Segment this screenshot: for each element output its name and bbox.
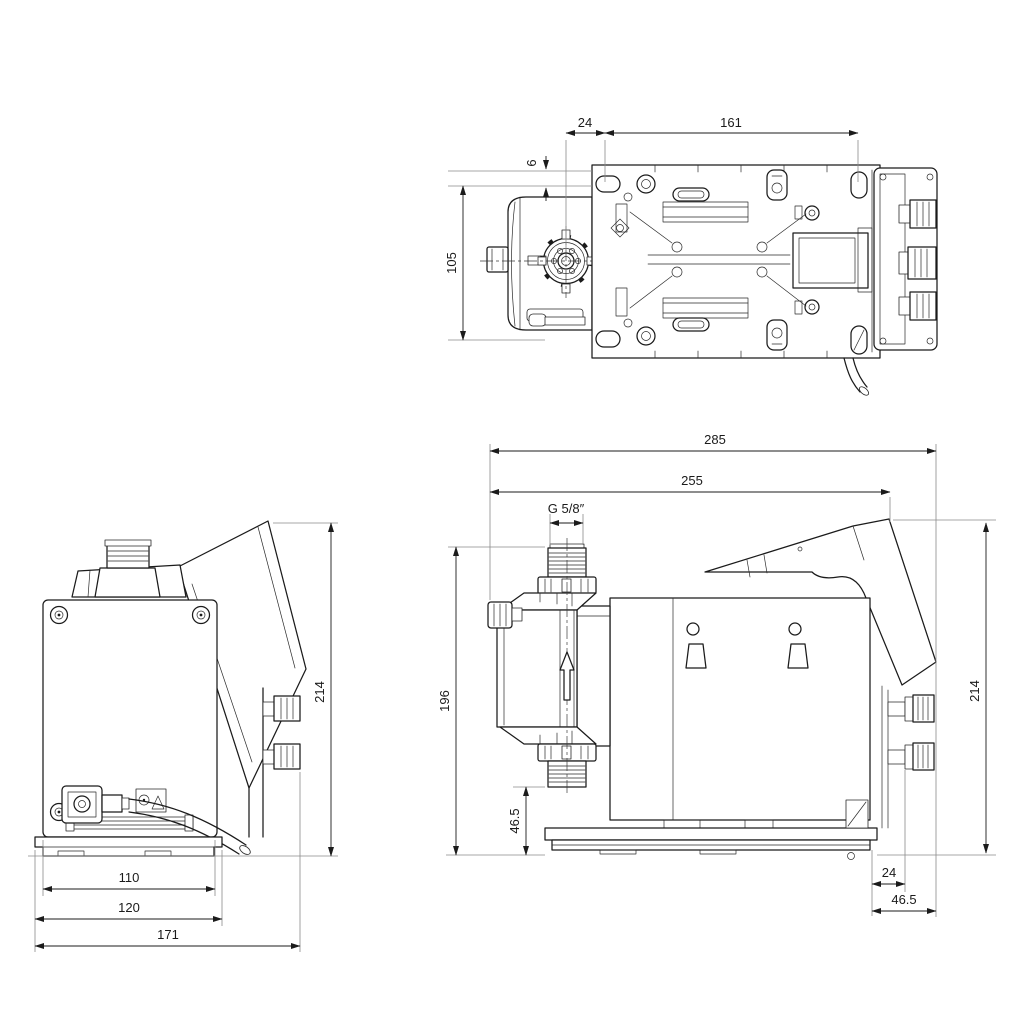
screw-top-right <box>193 607 210 624</box>
side-view: 285 255 G 5/8″ 196 46.5 214 24 46.5 <box>437 432 996 917</box>
knob-top-2 <box>899 247 936 279</box>
top-view: 24 161 6 105 <box>444 115 937 397</box>
dim-label-thread-clearance: 46.5 <box>507 808 522 833</box>
mounting-plate <box>592 165 880 358</box>
dim-label-plate-width: 110 <box>119 870 140 885</box>
dim-label-thread-size: G 5/8″ <box>548 501 585 516</box>
dim-label-hole-spacing: 161 <box>720 115 742 130</box>
dim-label-knob-face-offset: 46.5 <box>891 892 916 907</box>
clamp-bracket <box>527 309 585 326</box>
pump-dimension-drawing: 24 161 6 105 <box>0 0 1024 1024</box>
dim-label-overall-width: 171 <box>157 927 179 942</box>
top-connection-rear <box>72 540 186 597</box>
dim-label-suction-height: 196 <box>437 690 452 712</box>
pump-body-side <box>610 598 888 828</box>
dim-label-rear-height: 214 <box>312 681 327 703</box>
knob-side-2 <box>888 743 934 770</box>
power-cable-top <box>844 358 870 397</box>
rear-view: 214 110 120 171 <box>28 521 338 952</box>
base-rear <box>35 837 222 856</box>
dim-label-overall-length: 285 <box>704 432 726 447</box>
dim-label-edge-offset: 6 <box>524 159 539 166</box>
head-adapter <box>577 606 610 746</box>
dim-label-hole-offset: 24 <box>578 115 592 130</box>
control-unit-top <box>874 168 937 350</box>
dim-label-length-to-panel: 255 <box>681 473 703 488</box>
dim-label-base-width: 120 <box>118 900 140 915</box>
knob-side-1 <box>888 695 934 722</box>
dim-label-knob-offset: 24 <box>882 865 896 880</box>
dim-label-side-height: 214 <box>967 680 982 702</box>
screw-top-left <box>51 607 68 624</box>
dim-label-mounting-width: 105 <box>444 252 459 274</box>
technical-drawing-canvas: 24 161 6 105 <box>0 0 1024 1024</box>
